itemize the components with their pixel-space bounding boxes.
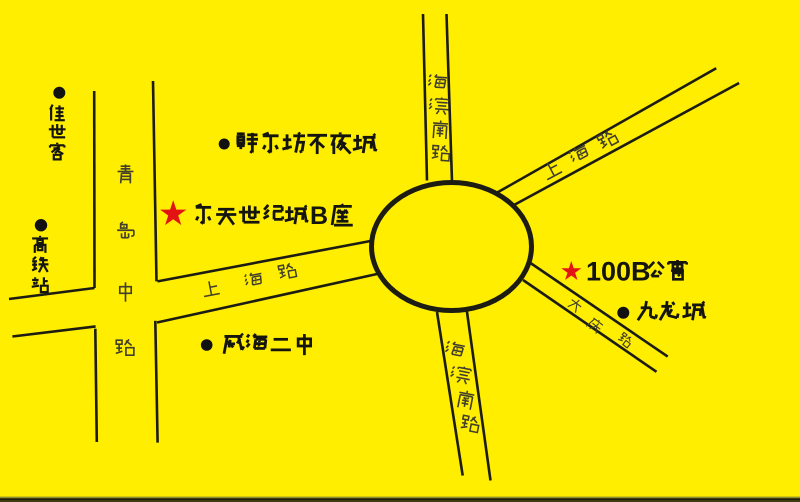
svg-text:100B: 100B xyxy=(586,257,651,287)
svg-text:B: B xyxy=(310,202,328,230)
